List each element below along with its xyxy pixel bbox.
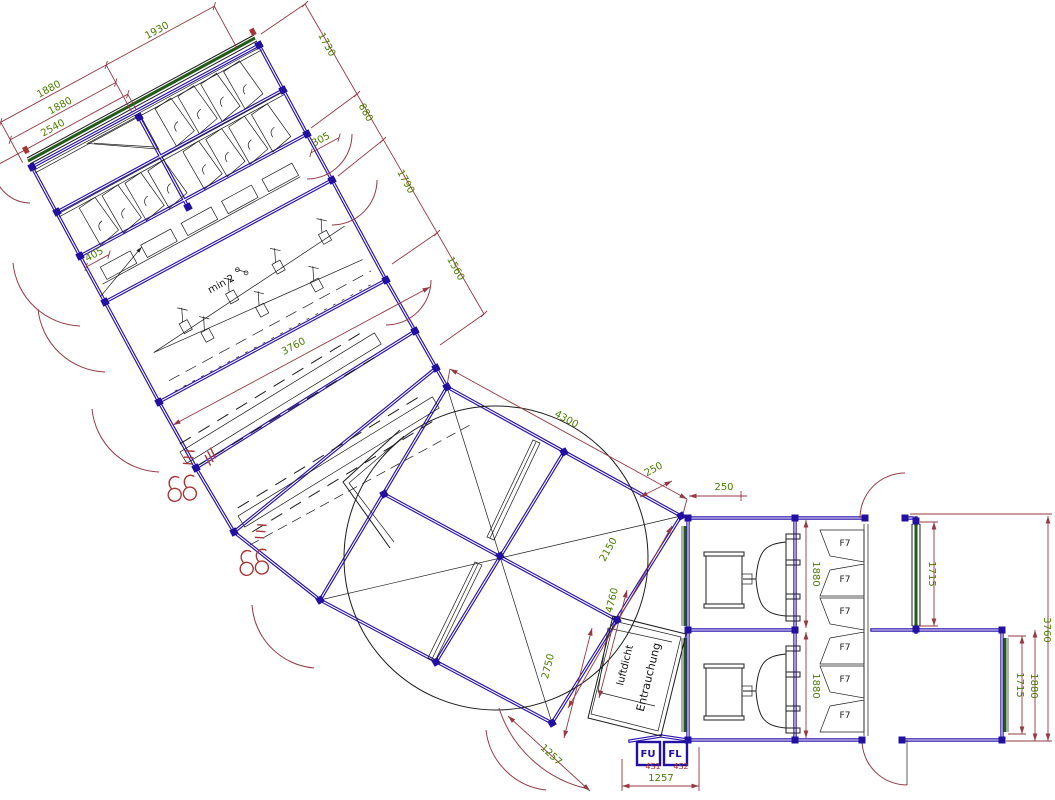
- dim-1880-right: 1880: [1028, 673, 1039, 698]
- dim-a-1930: 1930: [143, 20, 171, 42]
- dimension-4300: 4300: [447, 369, 687, 514]
- motor-icon: [706, 668, 742, 716]
- filter-label: F7: [840, 539, 851, 549]
- dim-2750: 2750: [540, 653, 557, 680]
- cad-floor-plan: 1880 1930 1880 2540 405 305 min 2 luftdi…: [0, 0, 1055, 800]
- filter-label: F7: [840, 575, 851, 585]
- box-fu-label: FU: [641, 749, 656, 760]
- label-min-slope: min 2: [206, 273, 236, 296]
- window-bands: [27, 35, 1008, 732]
- red-marker-icon: [22, 146, 30, 155]
- dim-3760-hall: 3760: [280, 336, 308, 358]
- travelator-band-2: [234, 391, 443, 534]
- filter-label: F7: [840, 607, 851, 617]
- filter-label: F7: [840, 675, 851, 685]
- dim-3760-right: 3760: [1041, 617, 1052, 642]
- red-marker-icon: [249, 28, 257, 37]
- switch-boxes: FU FL 4S1 4S2: [637, 742, 689, 771]
- dim-chain-1790: 1790: [394, 168, 416, 196]
- box-fl-label: FL: [668, 749, 682, 760]
- filter-label: F7: [840, 711, 851, 721]
- slope-symbol-row: min 2: [135, 208, 377, 392]
- dim-a-1880-mid: 1880: [47, 95, 75, 117]
- filter-bank: F7 F7 F7 F7 F7 F7: [820, 524, 868, 736]
- guide-dashed-line: [250, 425, 470, 545]
- dim-a-1880-top: 1880: [35, 79, 63, 101]
- fan-unit-2: [704, 646, 800, 733]
- dim-a-405: 405: [83, 246, 105, 265]
- dim-2150: 2150: [598, 536, 620, 564]
- dimension-250-pair: 250 250: [640, 460, 747, 501]
- dimension-right-chain: 1730 880 1790 1560: [261, 1, 487, 345]
- percent-slope-icon: [235, 264, 249, 278]
- dim-a-305: 305: [310, 131, 332, 150]
- box-fu-sub: 4S1: [645, 762, 660, 771]
- dim-chain-1560: 1560: [444, 255, 466, 283]
- dim-1715-upper: 1715: [926, 561, 937, 586]
- plan-canvas: 1880 1930 1880 2540 405 305 min 2 luftdi…: [0, 0, 1055, 800]
- label-luftdicht: luftdicht: [615, 644, 636, 687]
- dim-1880-room2: 1880: [810, 673, 821, 698]
- door-arcs: [0, 134, 907, 790]
- label-entrauchung: Entrauchung: [634, 641, 664, 712]
- dimension-1257-rot: 1257: [508, 716, 590, 791]
- dim-1715-lower: 1715: [1014, 672, 1025, 697]
- bench-row: [88, 163, 305, 297]
- dim-4760: 4760: [604, 587, 621, 614]
- filter-label: F7: [840, 643, 851, 653]
- dim-1257-h: 1257: [648, 773, 673, 784]
- dim-chain-1730: 1730: [315, 31, 337, 59]
- dim-250-rot: 250: [643, 460, 665, 479]
- entrauchung-room: luftdicht Entrauchung: [588, 616, 686, 736]
- dim-250-h: 250: [714, 482, 733, 493]
- dim-1880-room1: 1880: [810, 561, 821, 586]
- motor-icon: [706, 556, 742, 604]
- wall-nodes: [27, 40, 1005, 743]
- dim-a-2540: 2540: [39, 118, 67, 140]
- silencer-horns-icon: [756, 538, 786, 620]
- silencer-horns-icon: [756, 650, 786, 732]
- dim-1257-rot: 1257: [538, 742, 564, 767]
- box-fl-sub: 4S2: [673, 762, 688, 771]
- fan-unit-1: [704, 534, 800, 621]
